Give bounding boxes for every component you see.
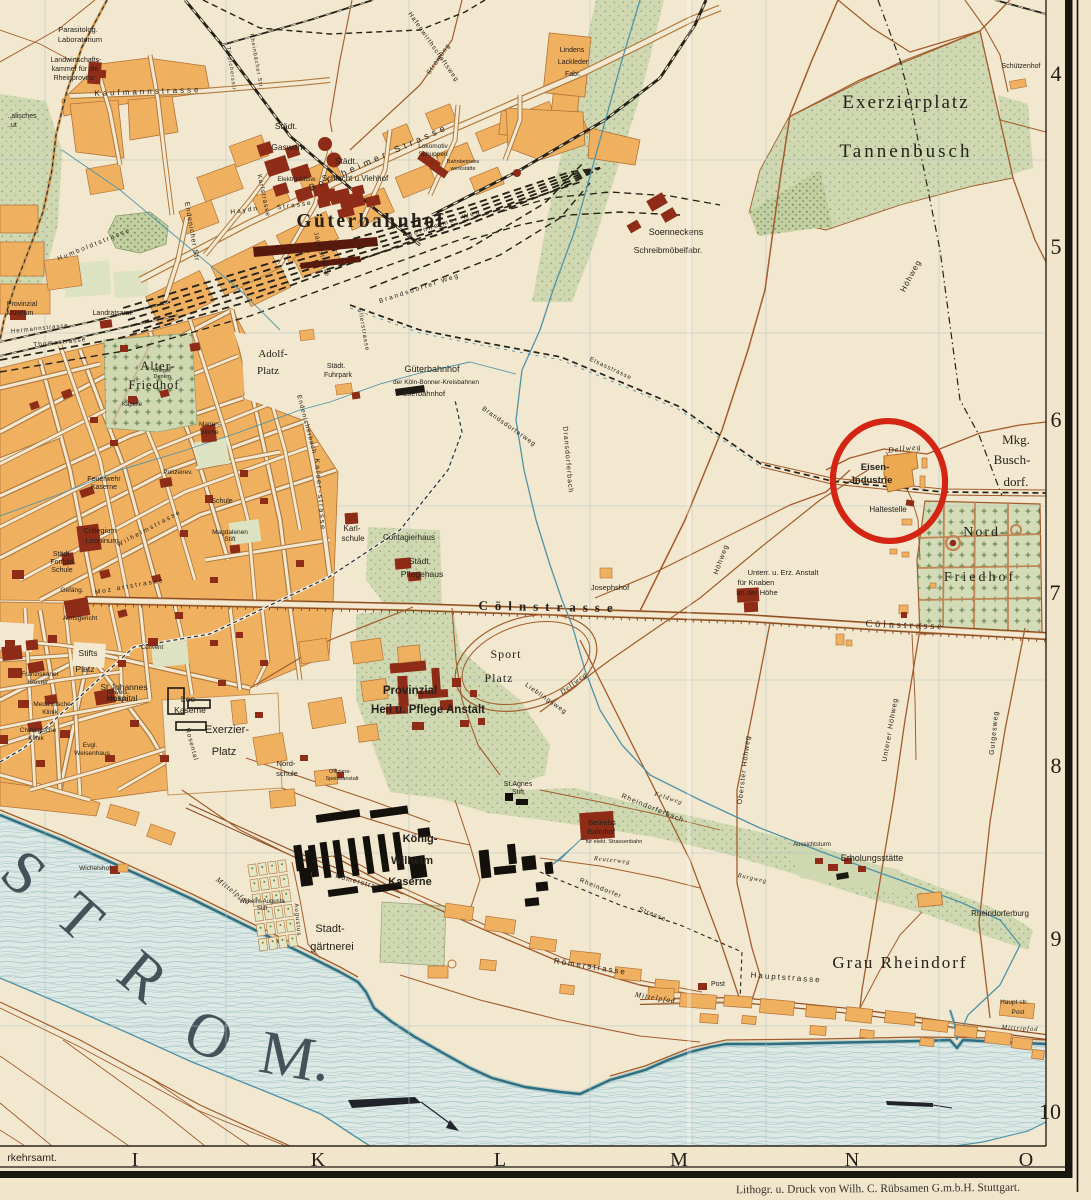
svg-text:Contagierhaus: Contagierhaus [383,533,435,542]
svg-text:Mkg.: Mkg. [1002,432,1030,447]
svg-text:Lithogr. u. Druck von Wilh.: Lithogr. u. Druck von Wilh. C. Rübsamen … [736,1182,1020,1196]
svg-text:Landwirtschafts-: Landwirtschafts- [51,57,103,64]
svg-text:Provinzial: Provinzial [7,301,38,308]
svg-text:Post: Post [1011,1009,1024,1016]
svg-text:N: N [845,1149,859,1171]
svg-text:Platz: Platz [485,671,514,685]
svg-text:Univers.: Univers. [107,690,129,696]
svg-text:Kaserne: Kaserne [388,876,431,888]
svg-text:Rheinprovinz: Rheinprovinz [54,75,95,82]
svg-text:Kaserne: Kaserne [174,705,206,715]
svg-text:kirche: kirche [201,429,219,436]
svg-text:Tannenbusch: Tannenbusch [840,141,973,162]
svg-text:I: I [132,1149,139,1171]
svg-text:der Köln-Bonner-Kreisbahnen: der Köln-Bonner-Kreisbahnen [393,379,479,386]
svg-text:Bahnhof: Bahnhof [587,827,616,836]
svg-text:König-: König- [403,833,438,845]
svg-text:Josephshof: Josephshof [591,583,630,592]
svg-text:Haupt str.: Haupt str. [1000,999,1028,1006]
svg-text:St.Agnes: St.Agnes [504,781,533,788]
svg-text:Kapelle: Kapelle [122,402,143,408]
svg-text:Wichelshof: Wichelshof [79,865,111,872]
svg-text:Lindens: Lindens [560,47,585,54]
svg-text:Wilhelm: Wilhelm [391,855,433,867]
svg-text:K: K [311,1149,326,1171]
svg-text:8: 8 [1051,753,1062,778]
svg-text:4: 4 [1051,61,1062,86]
svg-text:..alisches: ..alisches [7,113,37,120]
svg-text:Nord-: Nord- [277,759,296,768]
svg-text:Busch-: Busch- [994,452,1031,467]
svg-text:Lackleder: Lackleder [558,59,589,66]
svg-text:Laboratorium: Laboratorium [58,35,102,44]
svg-text:M: M [670,1149,688,1171]
svg-text:Exerzierplatz: Exerzierplatz [842,92,969,113]
svg-text:Klinik: Klinik [42,709,58,716]
svg-text:Offiziers-: Offiziers- [329,769,351,775]
svg-text:Stifts: Stifts [79,648,98,658]
svg-text:Schule: Schule [211,498,233,505]
svg-text:Museum: Museum [7,310,34,317]
svg-text:Soenneckens: Soenneckens [649,227,704,237]
svg-text:Kaserne: Kaserne [91,484,117,491]
svg-text:Städt.: Städt. [409,556,431,566]
svg-text:10: 10 [1039,1099,1061,1124]
svg-text:Heil u. Pflege Anstalt: Heil u. Pflege Anstalt [371,704,485,716]
svg-text:Grau Rheindorf: Grau Rheindorf [832,953,967,972]
svg-text:an der Höhe: an der Höhe [736,588,777,597]
svg-text:Gaswerk: Gaswerk [271,142,305,152]
svg-text:Kliniken: Kliniken [107,697,128,703]
svg-text:Schuppen: Schuppen [418,151,448,158]
svg-text:Fortbild.: Fortbild. [50,559,75,566]
svg-text:Bahnbetriebs: Bahnbetriebs [447,159,480,165]
svg-text:Stift: Stift [224,536,235,543]
svg-text:Klinik: Klinik [28,735,44,742]
svg-text:Karl-: Karl- [344,524,361,533]
svg-text:O: O [1019,1149,1033,1171]
svg-text:Leoninum: Leoninum [86,536,119,545]
svg-text:Sport: Sport [490,647,521,661]
svg-text:Ellerbahnhof: Ellerbahnhof [403,389,446,398]
svg-text:Städt.: Städt. [327,363,345,370]
svg-text:Städt.: Städt. [53,551,71,558]
svg-text:Friedhof: Friedhof [128,378,179,392]
svg-text:L: L [494,1149,506,1171]
svg-text:Marien-: Marien- [199,421,221,428]
svg-text:Aussichtsturm: Aussichtsturm [793,842,831,848]
svg-text:Unterr. u. Erz. Anstalt: Unterr. u. Erz. Anstalt [748,568,820,577]
svg-text:Amtsgericht: Amtsgericht [63,615,98,622]
svg-text:Friedhof: Friedhof [944,570,1016,585]
svg-text:Speiseanstalt: Speiseanstalt [325,776,358,782]
svg-text:Jndustrie: Jndustrie [850,475,893,486]
svg-text:..ut: ..ut [7,122,17,129]
svg-text:Feuerwehr: Feuerwehr [87,476,121,483]
svg-text:kammer für die: kammer für die [52,66,99,73]
svg-text:Pflegehaus: Pflegehaus [401,569,444,579]
svg-text:Provinzial: Provinzial [383,685,437,697]
svg-text:gärtnerei: gärtnerei [310,941,353,953]
svg-text:Cölnstrasse: Cölnstrasse [478,598,620,615]
svg-text:werkstätte: werkstätte [449,166,475,172]
svg-text:Stift: Stift [512,789,524,796]
svg-text:schule: schule [276,769,298,778]
svg-text:Platz: Platz [76,664,95,674]
svg-text:Collegium: Collegium [83,526,116,535]
svg-text:Schule: Schule [51,567,73,574]
svg-text:Nord-: Nord- [963,525,1006,540]
svg-text:schule: schule [341,534,365,543]
svg-text:Medizinische: Medizinische [33,701,71,708]
svg-text:Magdalenen: Magdalenen [212,529,248,536]
svg-text:Weisenhaus: Weisenhaus [74,750,110,757]
svg-text:Fuhrpark: Fuhrpark [324,372,353,379]
svg-text:Stadt-: Stadt- [315,923,345,935]
svg-text:Schützenhof: Schützenhof [1002,63,1041,70]
svg-text:Betriebs: Betriebs [588,818,616,827]
svg-text:Loe: Loe [181,694,195,704]
svg-text:Post: Post [711,981,725,988]
svg-text:Exerzier-: Exerzier- [205,724,249,736]
svg-text:Polizeirev.: Polizeirev. [163,469,193,476]
svg-text:Adolf-: Adolf- [258,348,288,360]
svg-text:Convent: Convent [141,645,164,651]
svg-text:Städt.: Städt. [275,121,297,131]
svg-text:Haltestelle: Haltestelle [869,505,907,514]
svg-text:Platz: Platz [212,746,236,758]
svg-text:M: M [254,1018,320,1095]
svg-text:Gefäng.: Gefäng. [60,587,83,594]
svg-text:9: 9 [1051,926,1062,951]
svg-text:Franziskaner: Franziskaner [21,671,59,678]
svg-text:5: 5 [1051,234,1062,259]
svg-text:Denkm.: Denkm. [154,374,173,380]
svg-text:Platz: Platz [257,365,279,377]
svg-text:dorf.: dorf. [1004,474,1029,489]
svg-text:Rheindorferburg: Rheindorferburg [971,909,1029,918]
svg-text:7: 7 [1050,580,1061,605]
svg-text:für elekt. Strassenbahn: für elekt. Strassenbahn [586,839,643,845]
svg-text:Güterbahnhof: Güterbahnhof [404,364,460,374]
svg-text:Lokomotiv: Lokomotiv [418,143,448,150]
svg-text:6: 6 [1051,407,1062,432]
svg-text:Evgl.: Evgl. [83,742,98,749]
svg-text:Kloster: Kloster [28,679,49,686]
svg-text:Landratsamt: Landratsamt [93,310,132,317]
svg-text:Stift: Stift [257,906,268,912]
svg-text:Fabr.: Fabr. [565,71,581,78]
svg-text:Chirurgische: Chirurgische [20,727,57,734]
svg-text:für Knaben: für Knaben [738,578,775,587]
svg-text:Erholungsstätte: Erholungsstätte [841,853,904,863]
svg-text:rkehrsamt.: rkehrsamt. [7,1152,57,1164]
svg-text:Eisen-: Eisen- [861,462,890,473]
svg-text:Parasitolog.: Parasitolog. [58,25,98,34]
